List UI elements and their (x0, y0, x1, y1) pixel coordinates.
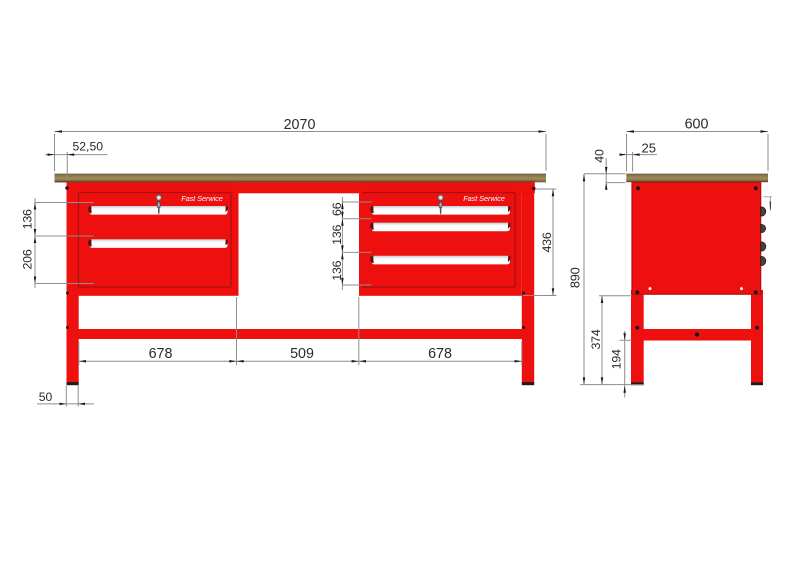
svg-text:50: 50 (39, 390, 53, 404)
svg-text:25: 25 (642, 140, 656, 155)
svg-text:136: 136 (20, 209, 34, 229)
svg-text:509: 509 (290, 346, 314, 362)
svg-text:374: 374 (589, 329, 603, 349)
svg-text:194: 194 (610, 349, 624, 369)
svg-text:206: 206 (20, 249, 34, 269)
svg-text:52,50: 52,50 (73, 140, 104, 154)
svg-text:436: 436 (540, 232, 554, 252)
svg-text:600: 600 (685, 116, 709, 132)
svg-text:Fast Serwice: Fast Serwice (181, 194, 223, 203)
svg-text:136: 136 (330, 224, 344, 244)
svg-text:2070: 2070 (284, 117, 316, 133)
svg-text:66: 66 (330, 202, 344, 216)
svg-text:678: 678 (428, 346, 452, 362)
svg-text:40: 40 (593, 149, 607, 163)
svg-text:678: 678 (149, 346, 173, 362)
svg-text:136: 136 (330, 260, 344, 280)
svg-text:890: 890 (568, 267, 583, 288)
svg-text:Fast Serwice: Fast Serwice (463, 194, 505, 203)
